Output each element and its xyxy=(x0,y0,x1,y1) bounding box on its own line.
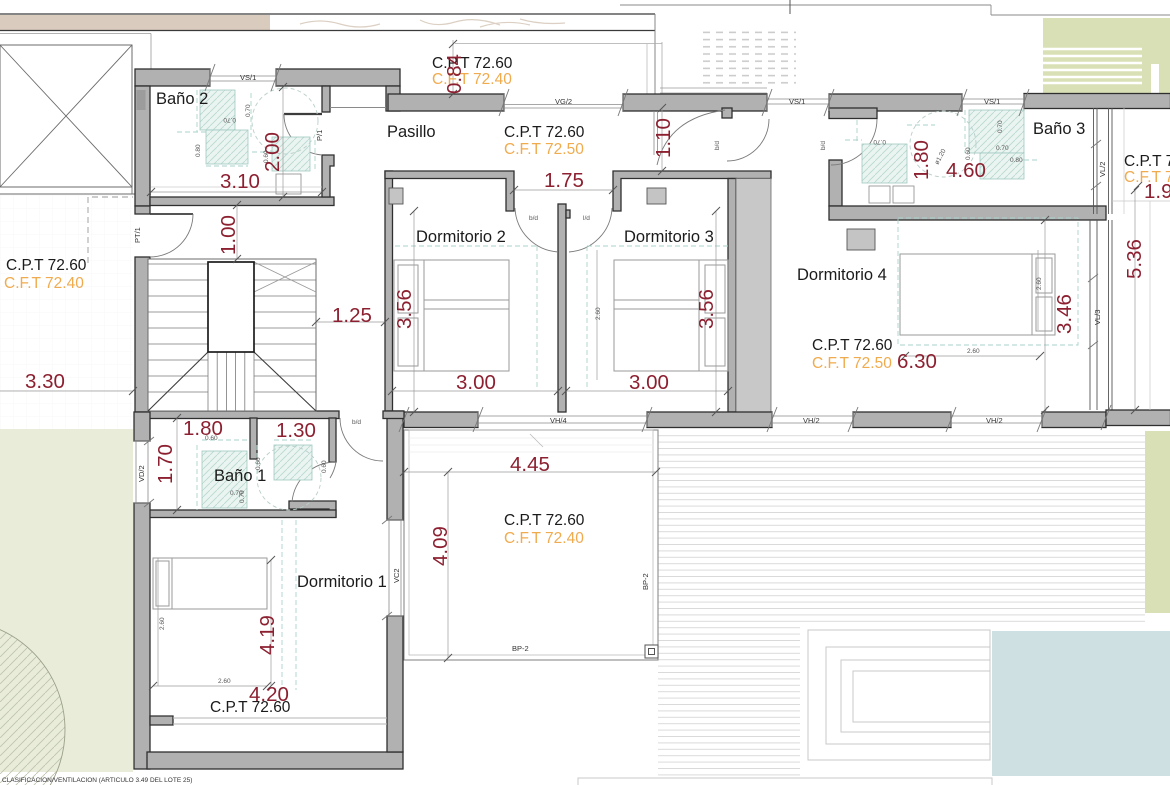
svg-text:3.56: 3.56 xyxy=(695,289,718,329)
svg-text:P/1: P/1 xyxy=(315,130,324,141)
svg-text:1.80: 1.80 xyxy=(910,140,933,180)
svg-text:Dormitorio 2: Dormitorio 2 xyxy=(416,228,506,246)
svg-text:0.80: 0.80 xyxy=(1010,157,1023,164)
svg-text:4.60: 4.60 xyxy=(946,159,986,182)
svg-text:C.P.T 72.60: C.P.T 72.60 xyxy=(6,257,87,274)
svg-text:Dormitorio 4: Dormitorio 4 xyxy=(797,266,887,284)
svg-text:1.75: 1.75 xyxy=(544,169,584,192)
svg-text:VC2: VC2 xyxy=(392,568,401,583)
svg-text:CLASIFICACION/VENTILACION (ART: CLASIFICACION/VENTILACION (ARTICULO 3.49… xyxy=(2,777,192,784)
svg-text:BP-2: BP-2 xyxy=(512,644,529,653)
svg-text:4.20: 4.20 xyxy=(249,683,289,706)
svg-text:3.46: 3.46 xyxy=(1053,294,1076,334)
svg-text:C.P.T 72.60: C.P.T 72.60 xyxy=(504,124,585,141)
svg-text:3.10: 3.10 xyxy=(220,170,260,193)
svg-text:0.70: 0.70 xyxy=(873,138,886,145)
svg-text:0.70: 0.70 xyxy=(996,145,1009,152)
svg-text:VH/2: VH/2 xyxy=(986,416,1003,425)
svg-text:4.45: 4.45 xyxy=(510,453,550,476)
svg-text:2.60: 2.60 xyxy=(1036,277,1043,290)
svg-text:0.60: 0.60 xyxy=(263,150,270,163)
svg-text:1.30: 1.30 xyxy=(276,419,316,442)
svg-text:1.00: 1.00 xyxy=(217,215,240,255)
svg-text:C.F.T 72.50: C.F.T 72.50 xyxy=(504,141,584,158)
svg-text:0.70: 0.70 xyxy=(223,116,236,123)
svg-text:Baño 2: Baño 2 xyxy=(156,90,208,108)
svg-text:2.60: 2.60 xyxy=(967,348,980,355)
svg-text:PT/1: PT/1 xyxy=(133,227,142,243)
svg-text:1.70: 1.70 xyxy=(154,444,177,484)
svg-text:0.70: 0.70 xyxy=(239,490,246,503)
svg-text:6.30: 6.30 xyxy=(897,350,937,373)
svg-text:b/d: b/d xyxy=(352,419,361,426)
svg-text:BP-2: BP-2 xyxy=(641,573,650,590)
svg-text:VD/2: VD/2 xyxy=(137,465,146,482)
svg-text:0.60: 0.60 xyxy=(965,147,972,160)
svg-text:VS/1: VS/1 xyxy=(789,97,805,106)
svg-text:2.60: 2.60 xyxy=(159,617,166,630)
svg-text:C.F.T 72.40: C.F.T 72.40 xyxy=(4,275,84,292)
svg-text:VS/1: VS/1 xyxy=(984,97,1000,106)
svg-text:VL/3: VL/3 xyxy=(1093,310,1102,325)
svg-text:3.56: 3.56 xyxy=(393,289,416,329)
svg-text:Pasillo: Pasillo xyxy=(387,123,436,141)
svg-text:1.25: 1.25 xyxy=(332,304,372,327)
svg-text:b/d: b/d xyxy=(529,215,538,222)
svg-text:VH/4: VH/4 xyxy=(550,416,567,425)
svg-text:3.00: 3.00 xyxy=(456,371,496,394)
svg-text:C.P.T 72.60: C.P.T 72.60 xyxy=(504,512,585,529)
svg-text:0.70: 0.70 xyxy=(245,104,252,117)
svg-text:VS/1: VS/1 xyxy=(240,73,256,82)
svg-text:5.36: 5.36 xyxy=(1123,239,1146,279)
svg-text:4.09: 4.09 xyxy=(429,526,452,566)
svg-text:1.10: 1.10 xyxy=(652,118,675,158)
svg-text:Dormitorio 1: Dormitorio 1 xyxy=(297,573,387,591)
svg-text:VH/2: VH/2 xyxy=(803,416,820,425)
svg-text:VG/2: VG/2 xyxy=(555,97,572,106)
svg-text:0.60: 0.60 xyxy=(255,457,262,470)
svg-text:0.60: 0.60 xyxy=(205,435,218,442)
svg-text:b/d: b/d xyxy=(820,141,827,150)
svg-text:b/d: b/d xyxy=(714,141,721,150)
svg-text:3.30: 3.30 xyxy=(25,370,65,393)
svg-text:3.00: 3.00 xyxy=(629,371,669,394)
svg-text:0.80: 0.80 xyxy=(195,144,202,157)
svg-text:C.P.T 72.60: C.P.T 72.60 xyxy=(1124,153,1170,170)
svg-text:2.60: 2.60 xyxy=(595,307,602,320)
svg-text:2.60: 2.60 xyxy=(218,678,231,685)
svg-text:4.19: 4.19 xyxy=(256,615,279,655)
svg-text:0.84: 0.84 xyxy=(443,54,466,94)
svg-text:C.F.T 72.50: C.F.T 72.50 xyxy=(812,355,892,372)
svg-text:l/d: l/d xyxy=(583,215,590,222)
svg-text:0.70: 0.70 xyxy=(997,120,1004,133)
svg-text:VL/2: VL/2 xyxy=(1098,162,1107,177)
svg-text:C.P.T 72.60: C.P.T 72.60 xyxy=(812,337,893,354)
svg-text:C.F.T 72.40: C.F.T 72.40 xyxy=(504,530,584,547)
svg-text:0.60: 0.60 xyxy=(321,460,328,473)
svg-text:1.95: 1.95 xyxy=(1144,180,1170,203)
svg-text:Dormitorio 3: Dormitorio 3 xyxy=(624,228,714,246)
svg-text:Baño 3: Baño 3 xyxy=(1033,120,1085,138)
